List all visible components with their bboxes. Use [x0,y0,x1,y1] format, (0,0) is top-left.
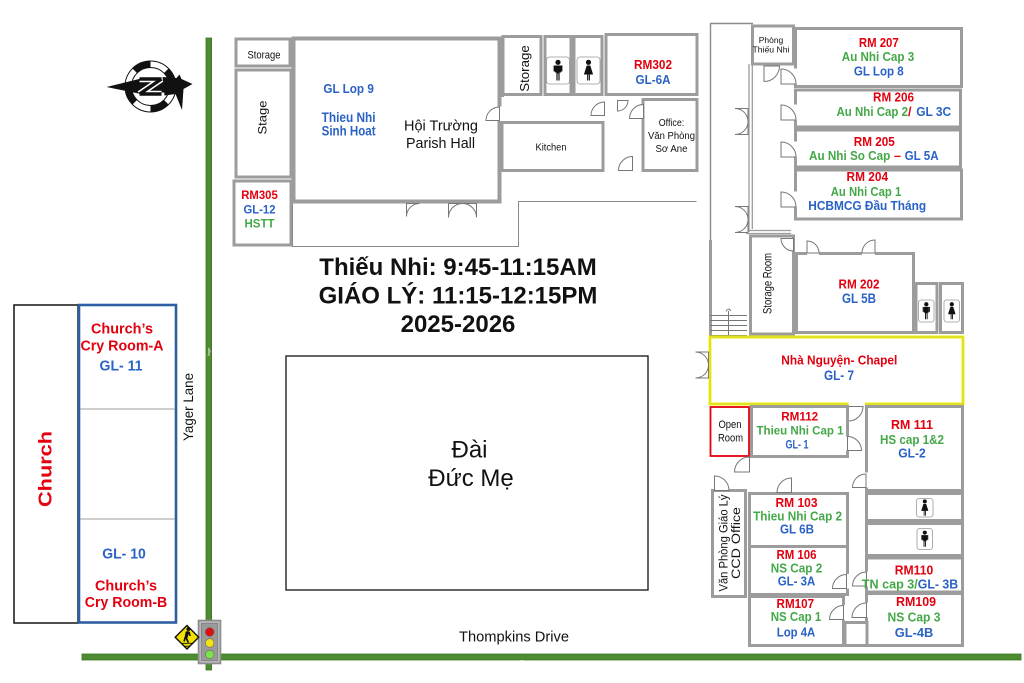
svg-text:Stage: Stage [256,100,270,134]
svg-text:HS cap 1&2: HS cap 1&2 [880,433,944,447]
svg-text:/: / [908,105,912,119]
svg-text:RM110: RM110 [895,564,934,578]
svg-text:Au Nhi So Cap: Au Nhi So Cap [809,149,891,163]
svg-text:2025-2026: 2025-2026 [401,311,516,338]
svg-text:Au Nhi Cap 3: Au Nhi Cap 3 [842,50,914,64]
svg-text:RM 202: RM 202 [839,277,880,292]
svg-text:Storage: Storage [248,50,281,62]
svg-text:GL- 3A: GL- 3A [778,575,816,589]
svg-text:GL-4B: GL-4B [895,626,934,640]
svg-text:Thieu Nhi Cap 2: Thieu Nhi Cap 2 [753,510,842,524]
svg-text:Đài: Đài [451,437,487,464]
svg-text:RM 103: RM 103 [776,496,818,510]
svg-text:Yager: Yager [207,347,211,357]
svg-text:GL- 3B: GL- 3B [918,578,958,592]
svg-text:Đức Mẹ: Đức Mẹ [428,465,513,492]
svg-text:GIÁO LÝ: 11:15-12:15PM: GIÁO LÝ: 11:15-12:15PM [319,282,598,310]
svg-text:Cry Room-A: Cry Room-A [81,339,165,355]
svg-text:RM112: RM112 [781,410,818,424]
svg-text:Thiếu Nhi: 9:45-11:15AM: Thiếu Nhi: 9:45-11:15AM [319,254,596,281]
svg-text:HCBMCG Đầu Tháng: HCBMCG Đầu Tháng [808,199,926,213]
svg-text:Church’s: Church’s [91,322,153,338]
svg-text:Storage Room: Storage Room [761,253,775,314]
svg-text:RM 207: RM 207 [859,36,899,50]
svg-text:GL- 10: GL- 10 [102,547,146,563]
svg-text:TN cap 3/: TN cap 3/ [862,578,919,592]
svg-text:RM305: RM305 [241,188,278,202]
svg-text:Church: Church [36,431,56,507]
svg-text:Au Nhi Cap 1: Au Nhi Cap 1 [831,185,902,199]
svg-text:Au Nhi Cap 2: Au Nhi Cap 2 [837,105,909,119]
svg-text:RM 106: RM 106 [777,548,817,562]
svg-text:Office:: Office: [659,117,685,129]
svg-text:Street: Street [520,660,529,664]
svg-text:CCD Office: CCD Office [731,507,743,579]
svg-text:Thiếu Nhi: Thiếu Nhi [753,45,790,55]
svg-text:GL-6A: GL-6A [636,73,671,87]
svg-text:Thompkins Drive: Thompkins Drive [459,629,569,646]
svg-text:GL 3C: GL 3C [916,105,951,119]
svg-text:NS Cap 3: NS Cap 3 [888,611,941,625]
svg-text:Parish Hall: Parish Hall [406,136,475,152]
svg-text:Sơ Ane: Sơ Ane [656,143,688,155]
svg-text:Storage: Storage [517,45,532,92]
svg-text:Nhà Nguyện- Chapel: Nhà Nguyện- Chapel [781,353,897,368]
svg-text:GL- 1: GL- 1 [786,438,809,452]
svg-text:NS Cap 1: NS Cap 1 [771,610,822,624]
svg-text:GL-12: GL-12 [244,203,276,217]
svg-text:GL 6B: GL 6B [780,523,814,537]
svg-text:NS Cap 2: NS Cap 2 [771,562,823,576]
svg-text:RM109: RM109 [896,595,936,609]
svg-text:Văn Phòng Giáo Lý: Văn Phòng Giáo Lý [719,494,731,591]
svg-text:Phòng: Phòng [759,35,784,45]
svg-text:HSTT: HSTT [245,217,276,231]
svg-text:GL Lop 8: GL Lop 8 [854,64,904,78]
svg-text:RM 204: RM 204 [847,170,889,184]
svg-text:Kitchen: Kitchen [536,142,567,154]
svg-text:RM 111: RM 111 [891,418,933,432]
svg-text:Cry Room-B: Cry Room-B [85,595,168,611]
svg-text:GL Lop 9: GL Lop 9 [323,81,374,96]
svg-text:GL 5B: GL 5B [842,291,876,306]
svg-text:RM302: RM302 [634,58,672,72]
svg-text:Lop 4A: Lop 4A [777,626,816,640]
svg-text:Room: Room [718,433,743,445]
svg-text:GL- 7: GL- 7 [824,368,854,383]
svg-text:Church’s: Church’s [95,579,157,595]
svg-text:Văn Phòng: Văn Phòng [648,130,695,142]
svg-text:RM107: RM107 [777,597,815,611]
svg-text:RM 205: RM 205 [854,135,895,149]
svg-text:Hội Trường: Hội Trường [404,119,478,135]
svg-text:Sinh Hoat: Sinh Hoat [322,124,376,139]
svg-text:Open: Open [719,419,742,431]
svg-text:Thieu Nhi Cap 1: Thieu Nhi Cap 1 [757,424,844,438]
svg-text:Yager Lane: Yager Lane [181,373,196,441]
svg-text:GL-2: GL-2 [898,447,926,461]
svg-text:–: – [894,149,901,163]
svg-text:RM 206: RM 206 [873,91,914,105]
svg-text:GL- 11: GL- 11 [100,359,143,375]
svg-text:GL 5A: GL 5A [905,149,939,163]
